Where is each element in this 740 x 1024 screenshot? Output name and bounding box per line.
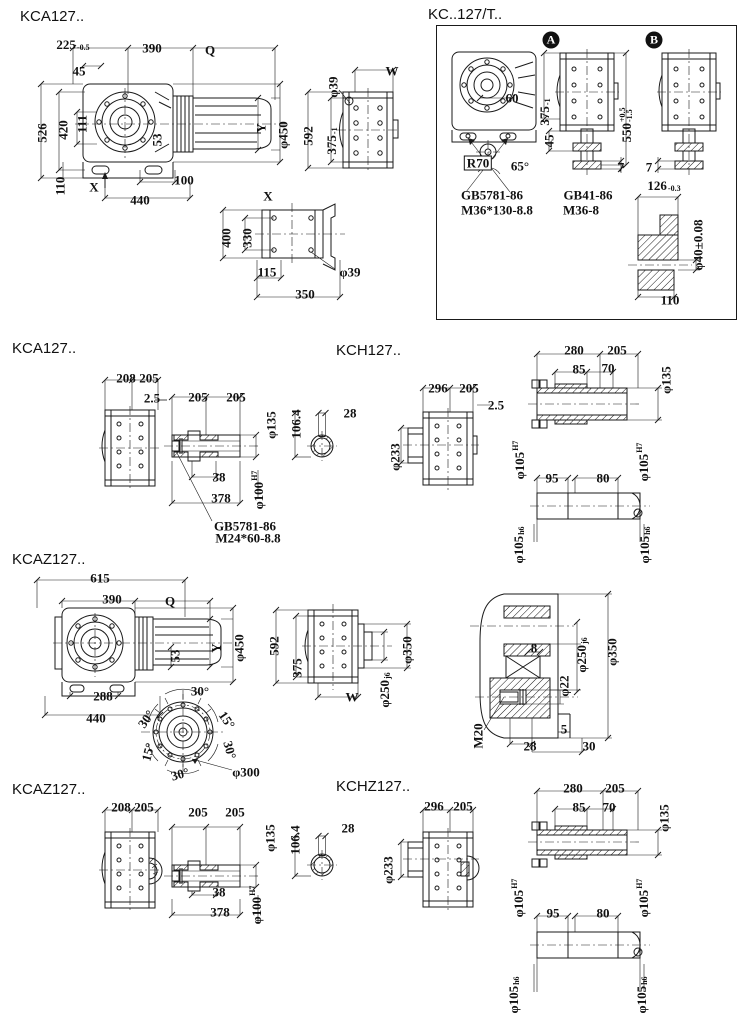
dim-label: φ450 — [233, 634, 246, 662]
dim-label: 8 — [531, 642, 538, 655]
dim-label: Q — [165, 595, 175, 608]
kcaz127-side-view-drawing — [262, 592, 418, 717]
dim-label: φ39 — [327, 76, 340, 97]
title-kca127-overall: KCA127.. — [20, 8, 84, 25]
dim-label: 205 — [226, 391, 246, 404]
dim-label: φ105H7 — [636, 879, 650, 918]
dim-label: φ135 — [660, 366, 673, 394]
dim-label: φ40±0.08 — [692, 220, 705, 271]
dim-label: B — [646, 32, 663, 49]
dim-label: 70 — [603, 801, 616, 814]
dim-label: φ105 h6 — [634, 976, 648, 1013]
dim-label: 80 — [597, 907, 610, 920]
dim-label: φ135 — [265, 411, 278, 439]
dim-label: 526 — [36, 123, 49, 143]
dim-label: 53 — [151, 134, 164, 147]
dim-label: 30 — [583, 740, 596, 753]
dim-label: 45 — [73, 65, 86, 78]
title-kcaz127-overall: KCAZ127.. — [12, 551, 85, 568]
kch127-hollow-shaft-drawing — [528, 338, 733, 433]
dim-label: φ105H7 — [512, 441, 526, 480]
dim-label: R70 — [464, 156, 492, 171]
dim-label: 205 — [188, 806, 208, 819]
dim-label: 30° — [191, 685, 209, 698]
dim-label: 53 — [169, 650, 182, 663]
dim-label: 60 — [506, 92, 519, 105]
title-kca127-shafts: KCA127.. — [12, 340, 76, 357]
kchz127-plate-drawing — [385, 800, 503, 922]
dim-label: φ105H7 — [511, 879, 525, 918]
dim-label: φ233 — [389, 443, 402, 471]
dim-label: 375 — [291, 658, 304, 678]
dim-label: φ250 j6 — [377, 672, 391, 707]
dim-label: 296 — [424, 800, 444, 813]
dim-label: 420 — [57, 120, 70, 140]
dim-label: 38 — [213, 886, 226, 899]
dim-label: 85 — [573, 801, 586, 814]
dim-label: 375 -1 — [537, 98, 551, 125]
dim-label: 110 — [54, 177, 67, 196]
dim-label: M36*130-8.8 — [461, 204, 533, 217]
dim-label: φ22 — [558, 675, 571, 696]
title-kc127t: KC..127/T.. — [428, 6, 502, 23]
dim-label: 330 — [241, 228, 254, 248]
dim-label: φ135 — [264, 824, 277, 852]
dim-label: 7 — [618, 161, 625, 174]
dim-label: 205 — [459, 382, 479, 395]
dim-label: 115 — [258, 266, 277, 279]
dim-label: M24*60-8.8 — [215, 532, 280, 545]
dim-label: 225 -0.5 — [56, 37, 89, 51]
dim-label: X — [89, 181, 98, 194]
dim-label: 400 — [220, 228, 233, 248]
dim-label: 205 — [225, 806, 245, 819]
dim-label: φ350 — [401, 636, 414, 664]
dim-label: φ105 h6 — [637, 526, 651, 563]
dim-label: φ233 — [382, 856, 395, 884]
dim-label: 280 — [563, 782, 583, 795]
dim-label: 592 — [268, 636, 281, 656]
title-kch127: KCH127.. — [336, 342, 401, 359]
dim-label: 390 — [102, 593, 122, 606]
dim-label: φ300 — [232, 766, 260, 779]
dim-label: 378 — [210, 906, 230, 919]
dim-label: 111 — [76, 115, 89, 133]
dim-label: 80 — [597, 472, 610, 485]
dim-label: φ105 h6 — [511, 526, 525, 563]
dim-label: 592 — [302, 126, 315, 146]
dim-label: 440 — [130, 194, 150, 207]
dim-label: 208 — [111, 801, 131, 814]
dim-label: 28 — [342, 822, 355, 835]
kcaz127-section-drawing — [470, 582, 630, 757]
dim-label: 70 — [602, 362, 615, 375]
dim-label: 280 — [564, 344, 584, 357]
dim-label: GB5781-86 — [461, 189, 523, 202]
dim-label: 205 — [453, 800, 473, 813]
dim-label: 45 — [543, 135, 556, 148]
kc127t-frame — [436, 25, 737, 320]
kch127-plate-drawing — [385, 378, 503, 495]
kchz127-hollow-shaft-drawing — [528, 775, 733, 875]
dim-label: 5 — [561, 723, 568, 736]
dim-label: 375 -1 — [324, 127, 338, 154]
dim-label: φ105H7 — [636, 443, 650, 482]
dim-label: 288 — [93, 690, 113, 703]
dim-label: W — [346, 691, 359, 704]
dim-label: 208 — [116, 372, 136, 385]
dim-label: φ250 j6 — [574, 637, 588, 672]
dim-label: 28 — [524, 740, 537, 753]
dim-label: 205 — [139, 372, 159, 385]
dim-label: A — [543, 32, 560, 49]
dim-label: 110 — [661, 294, 680, 307]
drawing-sheet: KCA127.. KC..127/T.. KCA127.. KCH127.. K… — [0, 0, 740, 1024]
dim-label: 95 — [546, 472, 559, 485]
dim-label: GB41-86 — [563, 189, 612, 202]
dim-label: 7 — [646, 161, 653, 174]
dim-label: 106.4 — [289, 825, 302, 854]
dim-label: 65° — [511, 160, 529, 173]
title-kcaz127-shafts: KCAZ127.. — [12, 781, 85, 798]
dim-label: 550+0.5-1.5 — [619, 107, 633, 142]
dim-label: 95 — [547, 907, 560, 920]
dim-label: φ39 — [339, 266, 360, 279]
title-kchz127: KCHZ127.. — [336, 778, 410, 795]
dim-label: φ450 — [277, 121, 290, 149]
dim-label: X — [263, 190, 272, 203]
dim-label: 390 — [142, 42, 162, 55]
dim-label: Y — [255, 123, 268, 132]
dim-label: 205 — [188, 391, 208, 404]
dim-label: 2.5 — [144, 392, 160, 405]
dim-label: 38 — [213, 471, 226, 484]
dim-label: Y — [210, 643, 223, 652]
dim-label: φ350 — [606, 638, 619, 666]
dim-label: 126 -0.3 — [647, 178, 680, 192]
dim-label: φ135 — [658, 804, 671, 832]
dim-label: 205 — [134, 801, 154, 814]
dim-label: 30° — [221, 740, 238, 761]
dim-label: Q — [205, 44, 215, 57]
dim-label: 296 — [428, 382, 448, 395]
dim-label: 440 — [86, 712, 106, 725]
dim-label: 2.5 — [488, 399, 504, 412]
dim-label: 85 — [573, 363, 586, 376]
dim-label: 28 — [344, 407, 357, 420]
dim-label: W — [386, 65, 399, 78]
dim-label: M36-8 — [563, 204, 599, 217]
dim-label: 106.4 — [290, 409, 303, 438]
dim-label: 615 — [90, 572, 110, 585]
dim-label: 205 — [607, 344, 627, 357]
dim-label: φ100H7 — [249, 886, 263, 925]
dim-label: M20 — [472, 723, 485, 748]
dim-label: φ105 h6 — [506, 976, 520, 1013]
dim-label: 350 — [295, 288, 315, 301]
dim-label: φ100H7 — [251, 471, 265, 510]
dim-label: 205 — [605, 782, 625, 795]
dim-label: 100 — [174, 174, 194, 187]
dim-label: 378 — [211, 492, 231, 505]
